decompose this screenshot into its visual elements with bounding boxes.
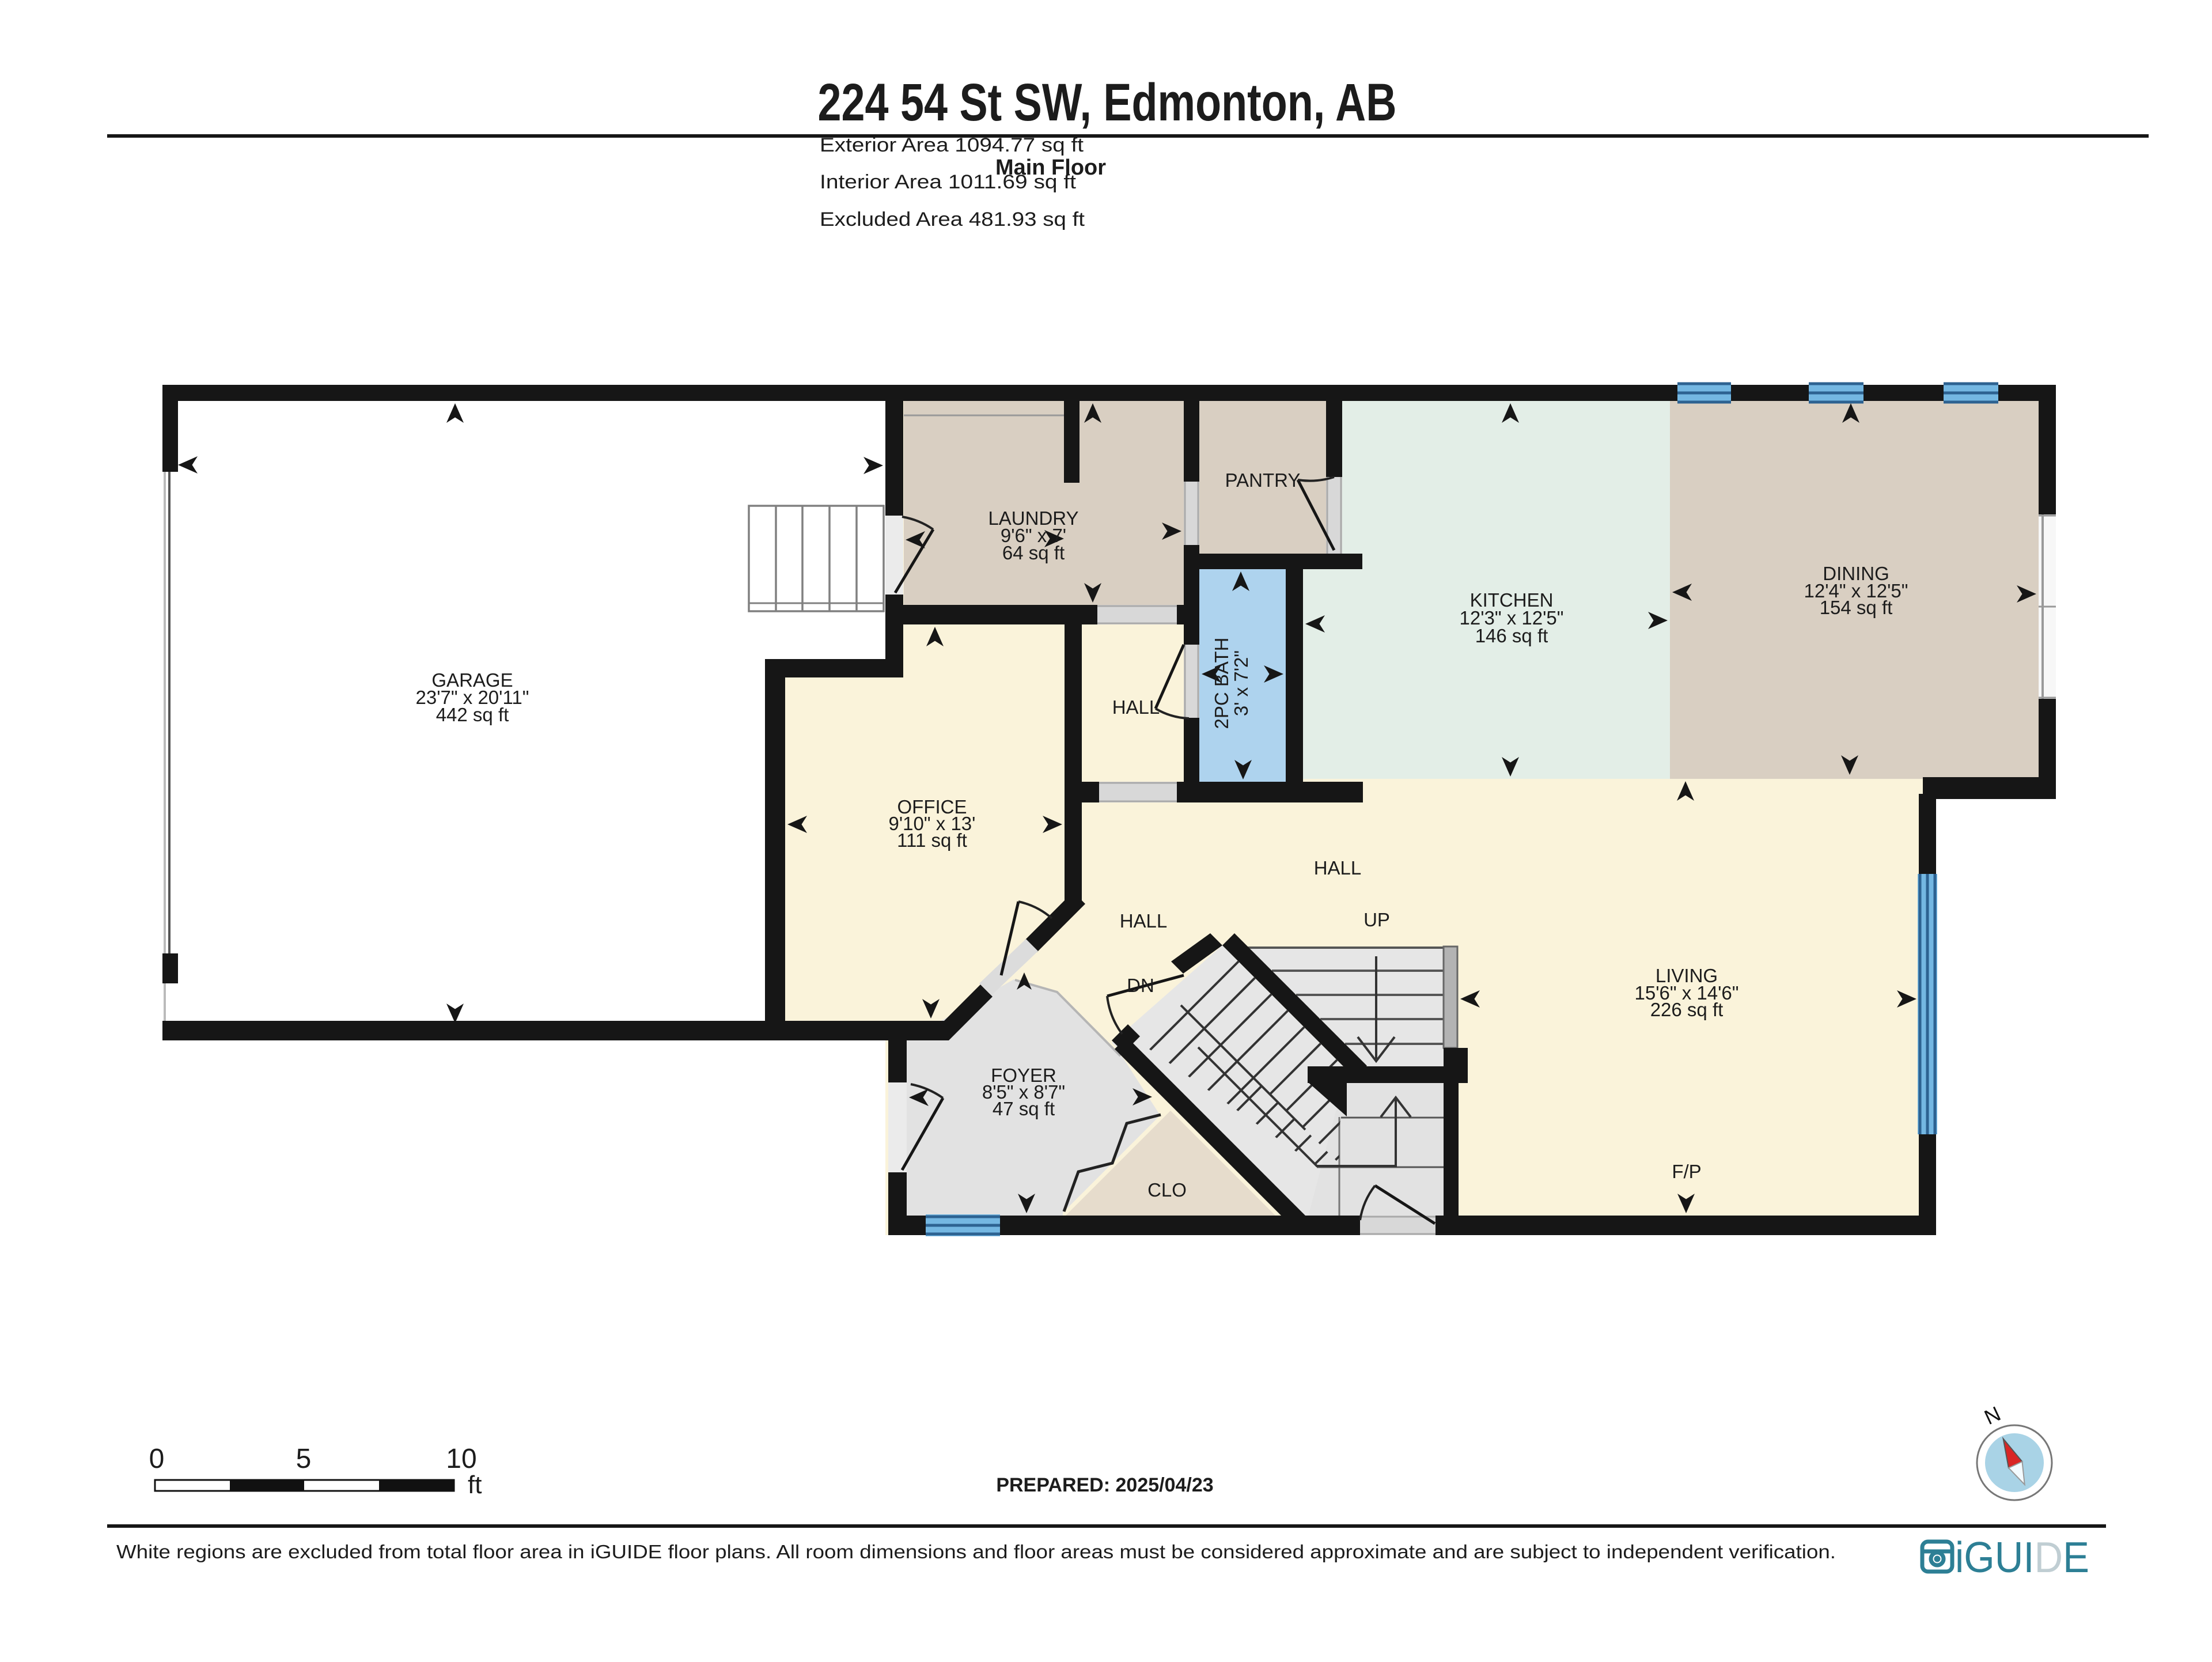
svg-text:2PC BATH: 2PC BATH xyxy=(1211,638,1232,729)
svg-text:0: 0 xyxy=(149,1444,165,1474)
svg-text:442 sq ft: 442 sq ft xyxy=(436,704,509,725)
svg-text:Exterior Area 1094.77 sq ft: Exterior Area 1094.77 sq ft xyxy=(820,134,1084,156)
svg-text:PREPARED: 2025/04/23: PREPARED: 2025/04/23 xyxy=(996,1474,1213,1496)
svg-text:CLO: CLO xyxy=(1147,1179,1187,1201)
svg-text:224 54 St SW, Edmonton, AB: 224 54 St SW, Edmonton, AB xyxy=(818,73,1397,132)
svg-text:146 sq ft: 146 sq ft xyxy=(1475,625,1548,646)
svg-text:HALL: HALL xyxy=(1120,910,1168,932)
svg-text:UP: UP xyxy=(1363,909,1390,930)
svg-text:ft: ft xyxy=(468,1471,482,1499)
svg-text:PANTRY: PANTRY xyxy=(1225,470,1301,491)
svg-text:Main Floor: Main Floor xyxy=(995,156,1106,180)
svg-text:iGUIDE: iGUIDE xyxy=(1955,1533,2089,1581)
svg-text:47 sq ft: 47 sq ft xyxy=(993,1098,1055,1119)
svg-text:226 sq ft: 226 sq ft xyxy=(1650,999,1724,1020)
svg-text:HALL: HALL xyxy=(1314,857,1362,879)
svg-text:HALL: HALL xyxy=(1112,696,1160,718)
svg-text:5: 5 xyxy=(296,1444,312,1474)
svg-text:10: 10 xyxy=(446,1444,476,1474)
svg-text:White regions are excluded fro: White regions are excluded from total fl… xyxy=(116,1541,1836,1562)
svg-text:3' x 7'2": 3' x 7'2" xyxy=(1230,650,1252,716)
svg-text:111 sq ft: 111 sq ft xyxy=(897,830,967,851)
svg-text:DN: DN xyxy=(1127,975,1154,996)
svg-text:154 sq ft: 154 sq ft xyxy=(1820,597,1893,618)
svg-text:64 sq ft: 64 sq ft xyxy=(1002,542,1065,563)
svg-text:F/P: F/P xyxy=(1672,1161,1701,1182)
svg-text:Excluded Area 481.93 sq ft: Excluded Area 481.93 sq ft xyxy=(820,209,1085,230)
